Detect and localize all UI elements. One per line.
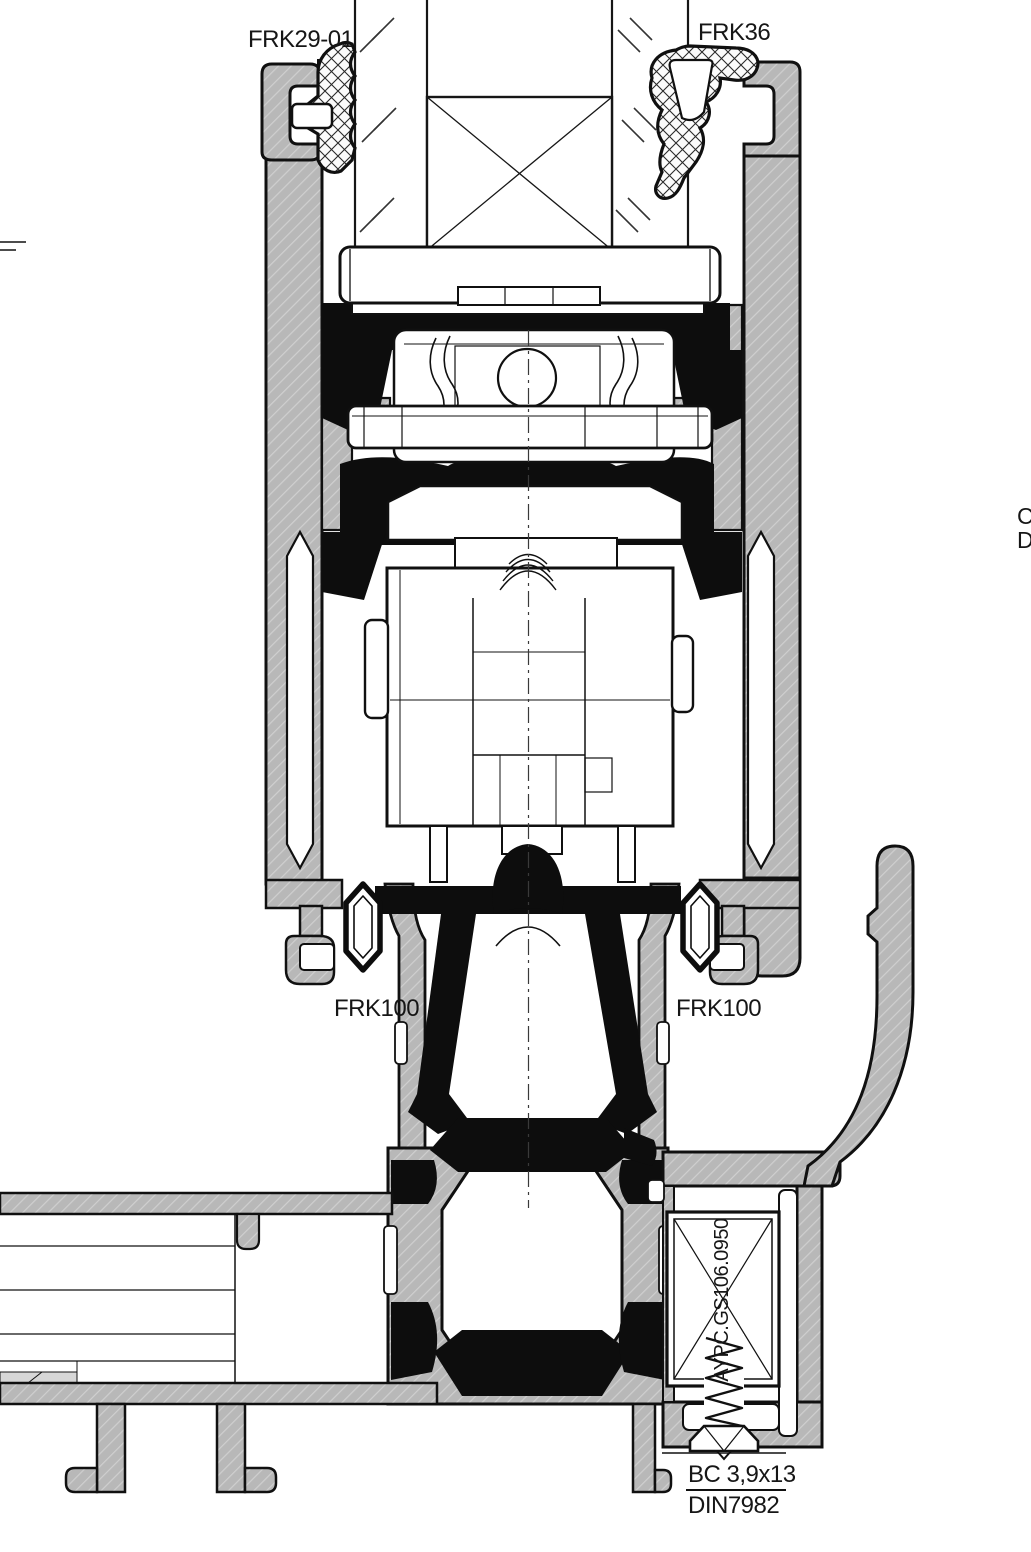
label-frk29-01: FRK29-01 (248, 26, 354, 53)
latch-roller (498, 349, 556, 407)
glass-hatch-left (360, 18, 396, 232)
gasket-frk36 (650, 46, 758, 198)
label-frk100-right: FRK100 (676, 995, 761, 1022)
label-insulator-code: AYPC.GS106.0950 (711, 1218, 733, 1382)
label-frk36: FRK36 (698, 19, 770, 46)
shim-stack-lines (0, 1246, 235, 1361)
gasket-frk100-right (683, 884, 717, 970)
glazing-bed-plate (340, 247, 720, 314)
frame-right-screw-slot (748, 532, 774, 868)
track-lower-box (384, 1118, 672, 1404)
pull-handle-hook (804, 846, 913, 1186)
left-edge-ticks (0, 242, 26, 250)
label-frk100-left: FRK100 (334, 995, 419, 1022)
frame-left-screw-slot (287, 532, 313, 868)
glass-hatch-right (616, 18, 656, 232)
latch-mechanism (348, 330, 712, 540)
label-screw-size: BC 3,9x13 (688, 1461, 796, 1488)
profile-section-drawing: FRK29-01 FRK36 FRK100 FRK100 AYPC.GS106.… (0, 0, 1031, 1552)
gasket-frk100-left (346, 884, 380, 970)
screw-head (690, 1426, 758, 1451)
technical-drawing-canvas: FRK29-01 FRK36 FRK100 FRK100 AYPC.GS106.… (0, 0, 1031, 1552)
glazing-unit (355, 0, 688, 250)
edge-letter-top: C (1017, 503, 1031, 529)
label-screw-standard: DIN7982 (688, 1492, 779, 1519)
edge-letter-bottom: D (1017, 527, 1031, 553)
